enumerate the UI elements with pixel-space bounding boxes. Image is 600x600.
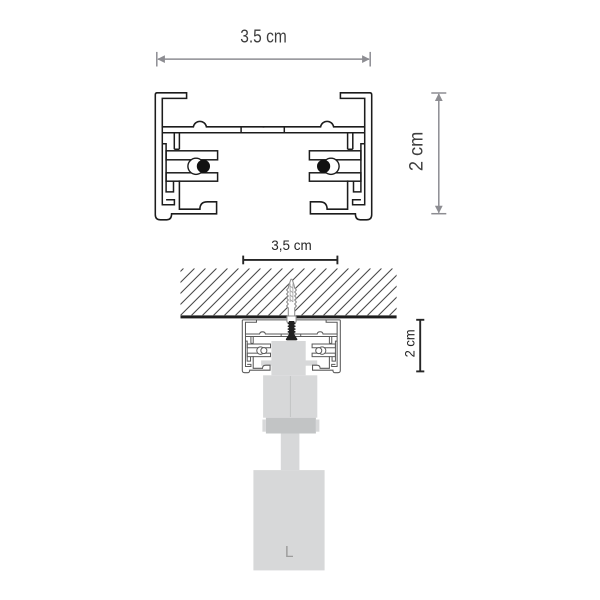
svg-text:3.5 cm: 3.5 cm: [240, 26, 287, 47]
svg-text:L: L: [285, 544, 294, 561]
svg-text:3,5 cm: 3,5 cm: [271, 237, 312, 253]
svg-text:2 cm: 2 cm: [403, 329, 418, 357]
svg-text:2 cm: 2 cm: [407, 132, 428, 172]
